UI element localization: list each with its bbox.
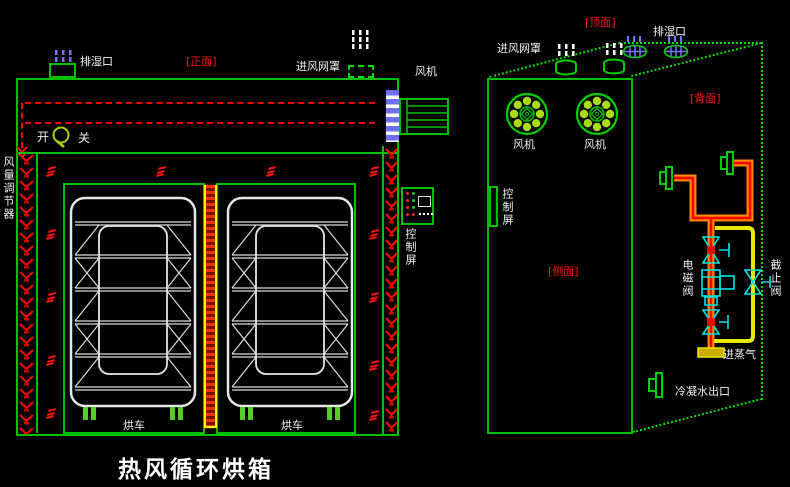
fan-label-right: 风机	[584, 139, 606, 151]
flow-mark	[369, 410, 379, 422]
steam-piping	[648, 140, 790, 372]
heater-column	[204, 185, 217, 428]
control-panel	[401, 187, 434, 225]
drying-cart-right	[226, 196, 354, 422]
solenoid-valve-label: 电磁阀	[681, 259, 693, 298]
fan-wheel	[504, 91, 550, 137]
right-louver-column	[384, 146, 399, 434]
drying-oven-diagram: 排湿口 [正面] 进风网罩 风机 开 关	[0, 0, 790, 487]
plenum-line	[18, 152, 397, 154]
flow-mark	[46, 408, 56, 420]
airflow-dashed-line-top	[25, 102, 375, 104]
inlet-cylinder-vent	[602, 58, 626, 75]
switch-on-label: 开	[37, 131, 49, 143]
drying-cart-left	[69, 196, 197, 422]
airflow-dashed-line-left	[21, 103, 23, 148]
inlet-cylinder-vent	[554, 59, 578, 76]
left-louver-column	[18, 152, 35, 434]
switch-off-label: 关	[78, 132, 90, 144]
fan-label-left: 风机	[513, 139, 535, 151]
diagram-title: 热风循环烘箱	[118, 450, 274, 484]
flow-mark	[46, 292, 56, 304]
front-view-label: [正面]	[186, 56, 217, 68]
flow-mark	[46, 229, 56, 241]
top-face-right-edge	[631, 42, 761, 77]
stop-valve-label: 截止阀	[769, 259, 781, 298]
left-louver-boundary	[36, 153, 38, 433]
inlet-dashes-icon	[350, 30, 370, 50]
inlet-mesh-box	[348, 65, 374, 78]
inlet-dashes-icon	[556, 44, 576, 57]
back-face-label: [背面]	[690, 93, 721, 105]
flow-mark	[156, 166, 166, 178]
condensate-outlet-label: 冷凝水出口	[675, 386, 730, 398]
exhaust-dashes-icon	[53, 50, 75, 63]
flow-mark	[369, 292, 379, 304]
back-face-bottom-edge	[633, 398, 762, 433]
flow-mark	[369, 360, 379, 372]
flow-mark	[46, 166, 56, 178]
airflow-dashed-line-bottom	[25, 122, 375, 124]
air-regulator-label: 风量调节器	[2, 156, 14, 221]
fan-label: 风机	[415, 66, 437, 78]
exhaust-port-label: 排湿口	[80, 56, 113, 68]
control-display	[418, 196, 431, 207]
flow-mark	[369, 229, 379, 241]
exhaust-dashes-icon	[668, 36, 684, 43]
flow-mark	[266, 166, 276, 178]
inlet-dashes-icon	[604, 43, 624, 56]
cart-label-left: 烘车	[112, 420, 156, 432]
exhaust-oval-vent	[663, 44, 689, 59]
flow-mark	[369, 166, 379, 178]
steam-inlet-label: 进蒸气	[723, 349, 756, 361]
cart-label-right: 烘车	[270, 420, 314, 432]
power-switch-icon	[51, 126, 73, 150]
fan-duct-column	[386, 90, 399, 142]
side-control-screen-label: 控制屏	[501, 188, 513, 227]
control-panel-label: 控制屏	[404, 228, 416, 267]
side-face-label: [侧面]	[548, 266, 579, 278]
top-face-label: [顶面]	[585, 17, 616, 29]
inlet-mesh-label: 进风网罩	[296, 61, 340, 73]
exhaust-vent-box	[49, 63, 76, 78]
side-inlet-mesh-label: 进风网罩	[497, 43, 541, 55]
fan-wheel	[574, 91, 620, 137]
right-louver-boundary	[382, 146, 384, 434]
flow-mark	[46, 355, 56, 367]
side-control-screen	[489, 186, 498, 227]
exhaust-dashes-icon	[627, 36, 643, 43]
exhaust-oval-vent	[622, 44, 648, 59]
condensate-fitting	[646, 371, 666, 401]
fan-motor	[399, 98, 449, 135]
